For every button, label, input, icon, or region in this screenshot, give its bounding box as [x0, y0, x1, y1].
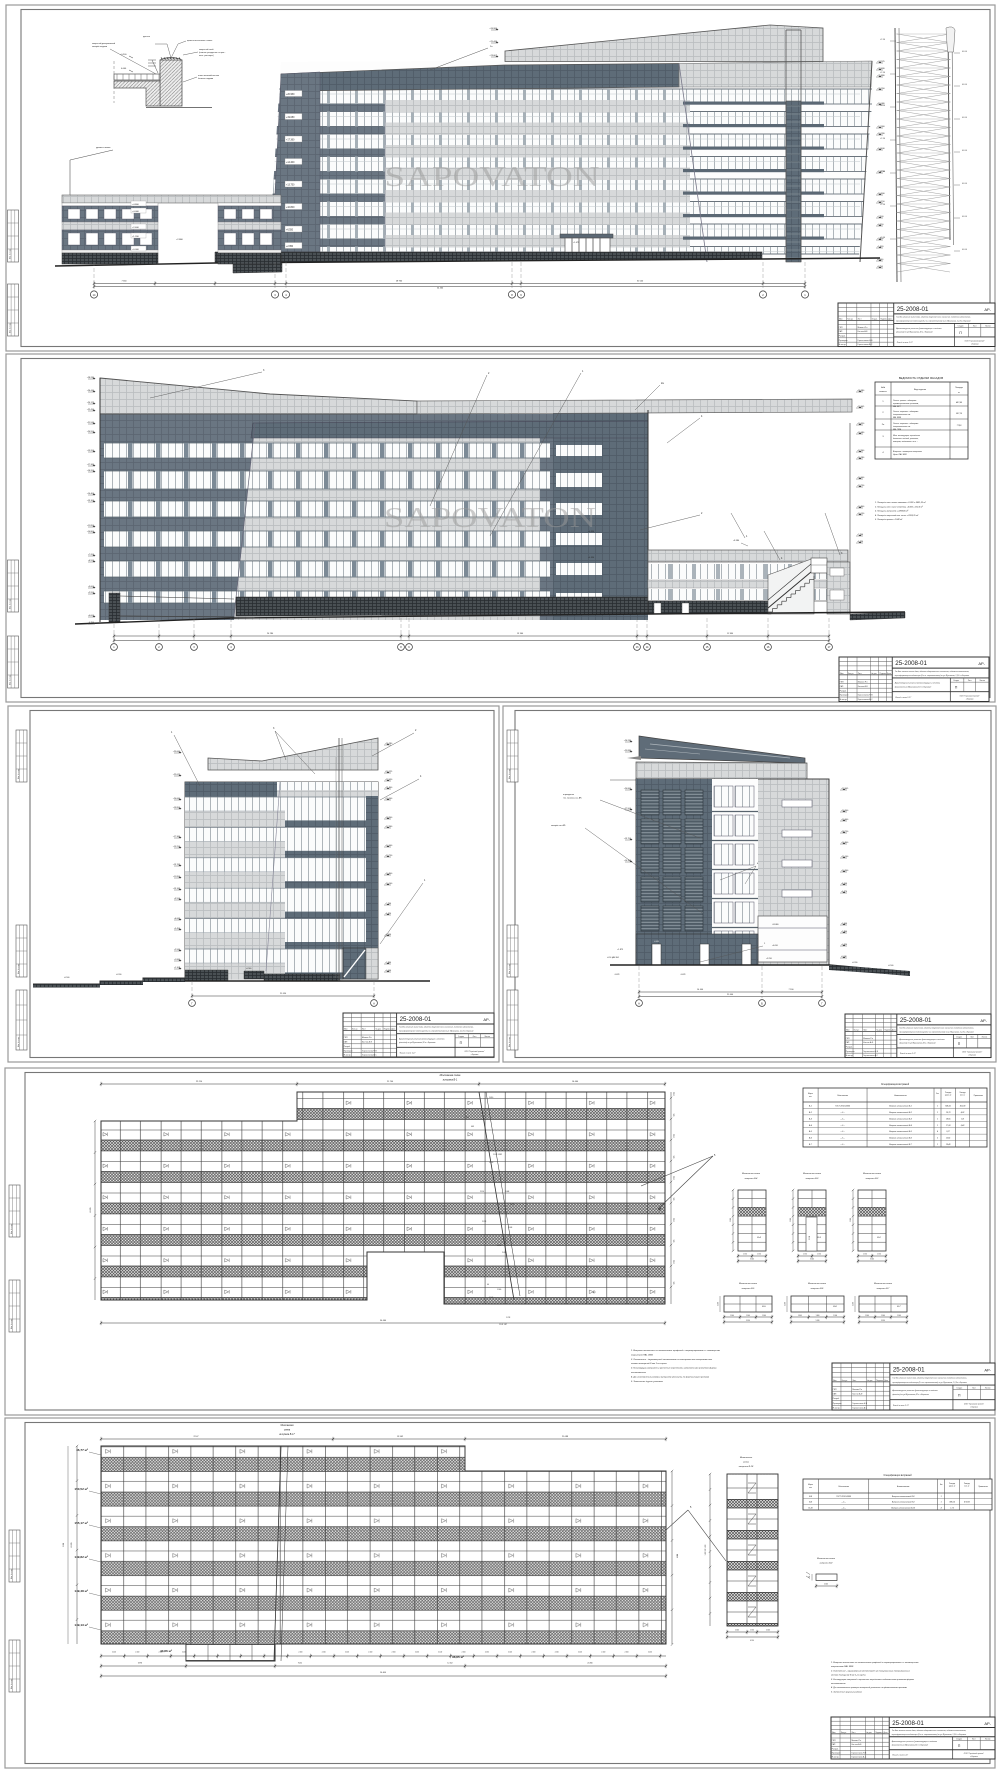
- svg-text:Кол.уч: Кол.уч: [352, 1029, 357, 1031]
- svg-text:Лист: Лист: [970, 1036, 974, 1038]
- svg-text:витража В-4: витража В-4: [745, 1177, 759, 1180]
- svg-text:2.003: 2.003: [508, 1227, 512, 1229]
- svg-text:-0.500: -0.500: [888, 965, 893, 967]
- svg-text:Площадь: Площадь: [959, 1092, 965, 1094]
- svg-text:Инв. № подл.: Инв. № подл.: [8, 248, 11, 259]
- svg-text:тех. балкона см. АР-: тех. балкона см. АР-: [563, 797, 582, 800]
- svg-text:+1.200: +1.200: [132, 236, 140, 238]
- svg-text:SAPOVATON: SAPOVATON: [385, 162, 600, 193]
- svg-text:Стены: порталы - облицовка: Стены: порталы - облицовка: [893, 411, 918, 413]
- svg-text:Архитектурные решения (реконст: Архитектурные решения (реконструкция и о…: [894, 682, 940, 685]
- svg-text:SAPOVATON: SAPOVATON: [384, 503, 596, 534]
- svg-text:Горностаева Н.В: Горностаева Н.В: [858, 340, 873, 342]
- svg-text:ООО "Городской проект": ООО "Городской проект": [464, 1050, 485, 1053]
- svg-text:Дата: Дата: [888, 319, 892, 321]
- svg-text:463: 463: [471, 1126, 474, 1128]
- svg-text:46,77 м²: 46,77 м²: [76, 1448, 88, 1452]
- svg-text:Инв. № подл.: Инв. № подл.: [508, 1036, 511, 1047]
- svg-text:Стены: порталы - облицовка: Стены: порталы - облицовка: [893, 423, 918, 425]
- svg-text:витража В-7: витража В-7: [877, 1288, 891, 1290]
- svg-text:3. Площадь витражей = 2266,65: 3. Площадь витражей = 2266,65 м²: [875, 510, 909, 513]
- svg-text:+4.800: +4.800: [132, 204, 140, 206]
- svg-text:Наименование: Наименование: [894, 1095, 906, 1097]
- svg-text:ВЕДОМОСТЬ ОТДЕЛКИ ФАСАДОВ: ВЕДОМОСТЬ ОТДЕЛКИ ФАСАДОВ: [899, 376, 943, 380]
- svg-text:24.225: 24.225: [71, 1542, 73, 1547]
- svg-text:1: 1: [941, 1496, 942, 1498]
- svg-text:5.910: 5.910: [881, 1320, 885, 1322]
- svg-text:фасадов) по ул.Мушникова,10 в: фасадов) по ул.Мушникова,10 в г.Кировске: [895, 685, 931, 688]
- svg-text:Н.контр.: Н.контр.: [840, 699, 848, 701]
- svg-text:Проверил: Проверил: [344, 1050, 353, 1052]
- svg-text:Горностаева А.С: Горностаева А.С: [852, 1756, 867, 1759]
- svg-text:1.750: 1.750: [877, 1254, 881, 1256]
- svg-text:4: 4: [941, 1506, 942, 1509]
- svg-text:Проверил: Проверил: [846, 1051, 855, 1053]
- svg-text:Лист: Лист: [473, 1036, 477, 1038]
- svg-text:Горностаева Н.В: Горностаева Н.В: [863, 1051, 878, 1053]
- svg-text:Разраб.: Разраб.: [840, 690, 847, 692]
- svg-text:«2.36: «2.36: [880, 204, 886, 206]
- svg-text:54.460: 54.460: [380, 1672, 386, 1674]
- svg-text:покрытием RAL 9006: покрытием RAL 9006: [631, 1353, 654, 1356]
- svg-text:3.500: 3.500: [750, 1259, 754, 1261]
- svg-text:ГИП: ГИП: [344, 1037, 348, 1039]
- svg-text:4. До изготовления размеры вит: 4. До изготовления размеры витражей уточ…: [631, 1375, 710, 1378]
- svg-text:2.360: 2.360: [63, 1543, 65, 1547]
- svg-text:Стадия: Стадия: [953, 680, 959, 682]
- svg-text:+13.750: +13.750: [286, 185, 295, 187]
- svg-text:2.100: 2.100: [485, 1652, 489, 1654]
- svg-text:149,82 м²: 149,82 м²: [74, 1555, 88, 1559]
- svg-text:витража В-18: витража В-18: [739, 1466, 754, 1468]
- svg-text:40.50: 40.50: [962, 249, 968, 251]
- svg-text:уровень земли: уровень земли: [96, 147, 111, 149]
- svg-text:А: А: [373, 1001, 375, 1005]
- svg-text:2. Остекление - двухкамерный с: 2. Остекление - двухкамерный стеклопакет…: [630, 1358, 713, 1361]
- svg-text:№ док.: № док.: [866, 1731, 872, 1734]
- svg-text:19.962: 19.962: [397, 1436, 404, 1438]
- svg-text:витража В-17: витража В-17: [279, 1434, 295, 1436]
- svg-text:витража В-9: витража В-9: [820, 1563, 834, 1565]
- svg-text:Дата: Дата: [883, 1732, 887, 1734]
- svg-text:Витраж алюминиевый В-9: Витраж алюминиевый В-9: [892, 1501, 915, 1504]
- svg-text:Монтажная: Монтажная: [281, 1425, 295, 1427]
- svg-text:Кол.уч: Кол.уч: [848, 673, 853, 675]
- svg-text:+1.875: +1.875: [617, 949, 624, 951]
- svg-text:24 280: 24 280: [267, 633, 274, 635]
- svg-text:цементно-песчаная стяжка: цементно-песчаная стяжка: [187, 40, 213, 42]
- svg-text:0.000: 0.000: [121, 68, 127, 70]
- svg-text:2.100: 2.100: [853, 1302, 855, 1306]
- svg-text:1.625: 1.625: [674, 1092, 676, 1096]
- svg-text:3. Конструкции витражей и креп: 3. Конструкции витражей и крепления опре…: [631, 1367, 717, 1370]
- svg-text:фасадов) по ул.Мушникова,10 в: фасадов) по ул.Мушникова,10 в г.Кировске: [899, 1042, 935, 1045]
- svg-text:(плитка тротуарная на цем.-: (плитка тротуарная на цем.-: [199, 52, 226, 54]
- svg-text:+14.400: +14.400: [286, 162, 295, 164]
- svg-text:925: 925: [674, 1156, 676, 1159]
- svg-text:+2.860: +2.860: [176, 239, 184, 241]
- svg-text:2.100: 2.100: [415, 1652, 419, 1654]
- svg-text:+4.000: +4.000: [132, 211, 140, 213]
- svg-text:Фасад в осях 1-17: Фасад в осях 1-17: [897, 341, 914, 344]
- svg-text:—//—: —//—: [839, 1112, 845, 1114]
- svg-text:АР-: АР-: [984, 1721, 991, 1726]
- svg-text:Монтажная схема: Монтажная схема: [742, 1173, 761, 1175]
- svg-text:Витраж алюминиевый В-1: Витраж алюминиевый В-1: [889, 1105, 912, 1108]
- svg-text:Кол.уч: Кол.уч: [854, 1030, 859, 1032]
- svg-text:Площадь: Площадь: [964, 1483, 970, 1485]
- svg-text:1.700: 1.700: [750, 1630, 754, 1632]
- svg-text:2.110: 2.110: [809, 1236, 811, 1240]
- svg-text:Архитектурные решения (реконст: Архитектурные решения (реконструкция и о…: [891, 1740, 937, 1743]
- svg-text:10,40: 10,40: [946, 1143, 951, 1146]
- svg-text:3. Конструкции витражей и креп: 3. Конструкции витражей и крепления опре…: [831, 1678, 914, 1681]
- svg-text:2.100: 2.100: [135, 1652, 139, 1654]
- svg-text:2.100: 2.100: [392, 1652, 396, 1654]
- svg-text:Витраж алюминиевый В-2: Витраж алюминиевый В-2: [889, 1111, 912, 1114]
- svg-text:Витраж алюминиевый В-10: Витраж алюминиевый В-10: [891, 1506, 915, 1509]
- svg-text:Проверил: Проверил: [832, 1753, 841, 1755]
- svg-text:2.100: 2.100: [601, 1652, 605, 1654]
- svg-text:7,21: 7,21: [961, 1118, 965, 1120]
- svg-text:13,78: 13,78: [946, 1112, 951, 1114]
- svg-text:411,03: 411,03: [960, 1105, 965, 1108]
- svg-text:ГИП: ГИП: [839, 327, 843, 329]
- svg-text:Инв. № подл.: Инв. № подл.: [10, 1318, 13, 1329]
- svg-text:2: 2: [936, 1138, 938, 1140]
- svg-text:ГИП: ГИП: [840, 681, 844, 683]
- svg-text:RAL 7024: RAL 7024: [893, 428, 901, 431]
- svg-text:ООО "Городской проект": ООО "Городской проект": [964, 1752, 985, 1755]
- svg-text:2.100: 2.100: [508, 1652, 512, 1654]
- svg-text:Инв. № подл.: Инв. № подл.: [10, 1223, 13, 1234]
- svg-text:1.625: 1.625: [674, 1260, 676, 1264]
- svg-text:фасадов) по ул.Мушникова,10 в: фасадов) по ул.Мушникова,10 в г.Кировске: [892, 1744, 928, 1747]
- svg-text:1.767: 1.767: [510, 1204, 514, 1206]
- svg-text:витража В-3: витража В-3: [806, 1178, 820, 1180]
- svg-text:7 560: 7 560: [121, 281, 127, 283]
- svg-text:28 960: 28 960: [396, 281, 403, 283]
- svg-text:645,51: 645,51: [945, 1105, 951, 1108]
- svg-text:+0.200: +0.200: [120, 54, 127, 56]
- svg-text:Витраж алюминиевый В-4: Витраж алюминиевый В-4: [889, 1124, 912, 1127]
- svg-text:925: 925: [674, 1240, 676, 1243]
- svg-text:21 600: 21 600: [727, 994, 734, 996]
- svg-text:2.100: 2.100: [785, 1302, 787, 1306]
- svg-text:1.625 925 1.625: 1.625 925 1.625: [705, 1544, 707, 1555]
- svg-text:витража В-5: витража В-5: [742, 1288, 756, 1290]
- svg-text:Инв. № подл.: Инв. № подл.: [8, 674, 11, 685]
- svg-text:ООО "Городской проект": ООО "Городской проект": [964, 1403, 985, 1406]
- svg-text:1.625: 1.625: [674, 1134, 676, 1138]
- svg-text:2.055: 2.055: [502, 1252, 506, 1254]
- svg-text:1. Витражи выполнить из алюмин: 1. Витражи выполнить из алюминиевых проф…: [831, 1661, 919, 1664]
- svg-text:г.Кировск: г.Кировск: [966, 698, 974, 700]
- svg-text:1.525: 1.525: [850, 1218, 852, 1222]
- svg-text:Кол.уч: Кол.уч: [842, 1380, 847, 1382]
- svg-text:керамогранитным гранитом,: керамогранитным гранитом,: [893, 403, 919, 405]
- svg-text:Мет. конструкции: ограждения: Мет. конструкции: ограждения: [893, 434, 920, 437]
- svg-text:ГОСТ 21519-2003: ГОСТ 21519-2003: [836, 1496, 851, 1498]
- svg-text:№ док.: № док.: [867, 1379, 873, 1382]
- svg-text:2.100: 2.100: [345, 1652, 349, 1654]
- svg-text:Листов: Листов: [484, 1036, 490, 1038]
- svg-text:25-2008-01: 25-2008-01: [897, 306, 929, 313]
- svg-text:Листов: Листов: [979, 680, 985, 682]
- svg-text:5.910: 5.910: [816, 1320, 820, 1322]
- svg-text:Фасад в осях 1-17: Фасад в осях 1-17: [892, 1754, 909, 1757]
- svg-text:ГИП: ГИП: [846, 1038, 850, 1040]
- svg-text:АР-: АР-: [984, 1368, 991, 1373]
- svg-text:балкона лоджии: балкона лоджии: [198, 78, 213, 80]
- svg-text:Подпись: Подпись: [880, 673, 887, 675]
- svg-text:декоративными анк.: декоративными анк.: [893, 413, 911, 416]
- svg-text:16.460: 16.460: [572, 1081, 579, 1083]
- svg-text:+4.050: +4.050: [772, 945, 778, 947]
- svg-text:Витраж алюминиевый В-6: Витраж алюминиевый В-6: [889, 1137, 912, 1140]
- svg-text:Разраб.: Разраб.: [833, 1398, 840, 1400]
- svg-text:Витраж алюминиевый В-3: Витраж алюминиевый В-3: [889, 1117, 912, 1120]
- svg-text:2.100: 2.100: [625, 1652, 629, 1654]
- svg-text:В-4: В-4: [809, 1124, 812, 1127]
- svg-text:Монтажная: Монтажная: [740, 1457, 753, 1459]
- svg-text:Цвет: RAL 9006: Цвет: RAL 9006: [893, 453, 907, 456]
- svg-text:АР-: АР-: [980, 1018, 987, 1023]
- svg-text:Фасад в осях 1-17: Фасад в осях 1-17: [400, 1051, 417, 1054]
- svg-text:Монтажная схема: Монтажная схема: [817, 1558, 836, 1560]
- svg-text:2.100: 2.100: [438, 1652, 442, 1654]
- svg-text:25-2008-01: 25-2008-01: [400, 1016, 432, 1023]
- svg-text:Проверил: Проверил: [833, 1403, 842, 1405]
- svg-text:1.900: 1.900: [798, 1315, 802, 1317]
- svg-text:2.100: 2.100: [462, 1652, 466, 1654]
- svg-text:3.500: 3.500: [810, 1259, 814, 1261]
- svg-text:-0.560: -0.560: [246, 968, 251, 970]
- svg-text:Витраж алюминиевый В-7: Витраж алюминиевый В-7: [889, 1143, 913, 1146]
- svg-text:Стадия: Стадия: [956, 1739, 962, 1741]
- svg-text:Мазеин Р.п: Мазеин Р.п: [863, 1038, 873, 1040]
- svg-text:Проверил: Проверил: [839, 340, 848, 342]
- svg-text:Монтажная схема: Монтажная схема: [739, 1283, 758, 1285]
- svg-text:1.900: 1.900: [816, 1315, 820, 1317]
- svg-text:Горностаева А.С: Горностаева А.С: [362, 1054, 377, 1057]
- svg-text:Разраб.: Разраб.: [832, 1748, 839, 1750]
- svg-text:Лист: Лист: [972, 1387, 976, 1389]
- svg-text:г.Кировск: г.Кировск: [970, 1756, 978, 1758]
- svg-text:54 460: 54 460: [437, 288, 444, 290]
- svg-text:Инв. № подл.: Инв. № подл.: [17, 963, 20, 974]
- svg-text:г.Кировск: г.Кировск: [968, 1054, 976, 1056]
- svg-text:Стадия: Стадия: [458, 1036, 464, 1038]
- svg-text:Архитектурные решения (реконст: Архитектурные решения (реконструкция и о…: [891, 1389, 937, 1392]
- svg-text:Н.контр.: Н.контр.: [344, 1055, 352, 1057]
- svg-text:5. Заполнение других участков: 5. Заполнение других участков: [831, 1690, 863, 1693]
- svg-text:Лист: Лист: [968, 680, 972, 682]
- svg-text:В-1: В-1: [809, 1106, 812, 1108]
- svg-text:21 650: 21 650: [280, 993, 287, 995]
- svg-text:1,72: 1,72: [950, 1507, 954, 1509]
- svg-text:2.100: 2.100: [555, 1652, 559, 1654]
- svg-text:+6.550: +6.550: [286, 230, 294, 232]
- svg-text:Лист: Лист: [858, 319, 862, 321]
- svg-text:12.102: 12.102: [447, 1663, 452, 1665]
- svg-text:—//—: —//—: [839, 1125, 845, 1127]
- svg-text:Монтажная схема: Монтажная схема: [874, 1283, 893, 1285]
- svg-text:Н.контр.: Н.контр.: [839, 344, 847, 346]
- svg-text:22.210: 22.210: [196, 1081, 203, 1083]
- svg-text:Б: Б: [761, 1001, 763, 1005]
- svg-text:1.900: 1.900: [865, 1315, 869, 1317]
- svg-text:1: 1: [937, 1106, 938, 1108]
- svg-text:Горностаева Н.В: Горностаева Н.В: [858, 695, 873, 697]
- svg-text:2.100: 2.100: [648, 1652, 652, 1654]
- svg-text:+3.250: +3.250: [766, 958, 772, 960]
- svg-text:№ док.: № док.: [871, 672, 877, 675]
- svg-text:Горностаева А.С: Горностаева А.С: [852, 1407, 867, 1410]
- svg-text:Лист: Лист: [863, 1030, 867, 1032]
- svg-text:925: 925: [674, 1282, 676, 1285]
- svg-text:Мазеин Р.п: Мазеин Р.п: [852, 1740, 862, 1742]
- svg-text:17,33: 17,33: [946, 1125, 951, 1127]
- svg-text:Проверил: Проверил: [840, 695, 849, 697]
- svg-text:ООО "Городской проект": ООО "Городской проект": [962, 1050, 983, 1053]
- svg-text:40.50: 40.50: [962, 150, 968, 152]
- svg-text:1.900: 1.900: [833, 1315, 837, 1317]
- svg-text:21.088: 21.088: [562, 1436, 569, 1438]
- svg-text:Площадь: Площадь: [945, 1092, 951, 1094]
- svg-text:1. Витражи выполнить из алюмин: 1. Витражи выполнить из алюминиевых проф…: [631, 1349, 720, 1352]
- svg-text:—//—: —//—: [839, 1131, 845, 1133]
- svg-text:Подпись: Подпись: [880, 319, 887, 321]
- svg-text:-0.500: -0.500: [64, 977, 69, 979]
- svg-text:11 380: 11 380: [727, 633, 734, 635]
- svg-text:Марка: Марка: [808, 1093, 813, 1095]
- svg-text:—//—: —//—: [839, 1118, 845, 1120]
- svg-text:Мазеин Р.п: Мазеин Р.п: [858, 681, 868, 683]
- svg-text:фасадов) по ул.Мушникова,10 в: фасадов) по ул.Мушникова,10 в г.Кировске: [896, 331, 932, 334]
- svg-text:стекол толщиной 6 мм 1-го сорт: стекол толщиной 6 мм 1-го сорта: [831, 1674, 867, 1677]
- svg-text:№ док.: № док.: [375, 1028, 381, 1031]
- svg-text:1.960: 1.960: [497, 1289, 501, 1291]
- svg-text:Подпись: Подпись: [876, 1380, 883, 1382]
- svg-text:2.100: 2.100: [182, 1652, 186, 1654]
- svg-text:2.168: 2.168: [497, 1245, 501, 1247]
- svg-text:Стадия: Стадия: [956, 1036, 962, 1038]
- svg-text:АР-: АР-: [483, 1017, 490, 1022]
- svg-text:Горностаева Н.В: Горностаева Н.В: [852, 1403, 867, 1405]
- svg-text:«2.36: «2.36: [880, 105, 886, 107]
- svg-text:Стены: цоколь - облицовка: Стены: цоколь - облицовка: [893, 400, 916, 402]
- svg-text:Кол.уч: Кол.уч: [841, 1732, 846, 1734]
- svg-text:14 400: 14 400: [697, 989, 704, 991]
- svg-text:2.223: 2.223: [482, 1221, 486, 1223]
- svg-text:4,32: 4,32: [961, 1111, 965, 1114]
- svg-text:витража В-6: витража В-6: [811, 1288, 825, 1290]
- svg-text:Фасад в осях 1-17: Фасад в осях 1-17: [900, 1052, 917, 1055]
- svg-text:4: 4: [937, 1130, 938, 1133]
- svg-text:Горностаева Н.В: Горностаева Н.В: [852, 1753, 867, 1755]
- svg-text:149,13 м²: 149,13 м²: [74, 1623, 88, 1627]
- svg-text:5,43: 5,43: [961, 1124, 965, 1127]
- svg-text:906,13: 906,13: [949, 1502, 955, 1504]
- svg-text:36,65 м²: 36,65 м²: [452, 1655, 464, 1659]
- svg-text:—//—: —//—: [840, 1502, 846, 1504]
- svg-text:Архитектурные решения (реконст: Архитектурные решения (реконструкция и о…: [895, 327, 941, 330]
- svg-text:+8.580: +8.580: [733, 540, 740, 542]
- svg-text:150,52 м²: 150,52 м²: [74, 1487, 88, 1491]
- svg-text:ООО "Городской проект": ООО "Городской проект": [960, 694, 981, 697]
- svg-text:40.50: 40.50: [962, 216, 968, 218]
- svg-text:1.502: 1.502: [489, 1297, 493, 1299]
- svg-text:2.100: 2.100: [531, 1652, 535, 1654]
- svg-text:+10.800: +10.800: [286, 207, 295, 209]
- svg-text:изготовителя: изготовителя: [831, 1683, 846, 1685]
- svg-text:RAL 9077: RAL 9077: [893, 405, 902, 408]
- svg-text:Горностаева А.С: Горностаева А.С: [858, 343, 873, 346]
- svg-text:Спецификация витражей: Спецификация витражей: [881, 1083, 910, 1086]
- svg-text:1. Площадь стен выше отметки +: 1. Площадь стен выше отметки +0.000 = 24…: [875, 501, 926, 504]
- svg-text:Стадия: Стадия: [958, 325, 964, 327]
- svg-text:Разраб.: Разраб.: [344, 1046, 351, 1048]
- svg-text:5. Площадь кровли = 1242 м²: 5. Площадь кровли = 1242 м²: [875, 518, 903, 521]
- svg-text:2.300: 2.300: [824, 1584, 828, 1586]
- svg-text:2. Остекление - двухкамерный с: 2. Остекление - двухкамерный стеклопакет…: [830, 1669, 911, 1672]
- svg-text:Лист: Лист: [852, 1380, 856, 1382]
- svg-text:фасадов) по ул.Мушникова,10 в: фасадов) по ул.Мушникова,10 в г.Кировске: [892, 1393, 928, 1396]
- svg-text:1.750: 1.750: [743, 1254, 747, 1256]
- svg-text:Мазеин Р.п: Мазеин Р.п: [362, 1037, 372, 1039]
- svg-text:Инв. № подл.: Инв. № подл.: [8, 322, 11, 333]
- svg-text:козырёк см. АР-: козырёк см. АР-: [551, 824, 566, 827]
- svg-text:-1.478: -1.478: [680, 974, 685, 976]
- svg-text:1.900: 1.900: [746, 1315, 750, 1317]
- svg-text:Листов: Листов: [985, 1739, 991, 1741]
- svg-text:АР-: АР-: [978, 661, 985, 666]
- svg-text:Кол.уч: Кол.уч: [847, 319, 852, 321]
- svg-text:Листов: Листов: [982, 1036, 988, 1038]
- svg-text:1: 1: [937, 1125, 938, 1127]
- svg-text:1.102 1.87: 1.102 1.87: [499, 1324, 507, 1326]
- svg-text:1.750: 1.750: [803, 1254, 807, 1256]
- svg-text:Монтажная схема: Монтажная схема: [803, 1173, 822, 1175]
- svg-text:2.100: 2.100: [368, 1652, 372, 1654]
- svg-text:4. До изготовления размеры вит: 4. До изготовления размеры витражей уточ…: [831, 1686, 907, 1689]
- svg-text:Инв. № подл.: Инв. № подл.: [8, 598, 11, 609]
- svg-text:стекол толщиной 6 мм 1-го сорт: стекол толщиной 6 мм 1-го сорта: [631, 1362, 668, 1365]
- svg-text:2.100: 2.100: [578, 1652, 582, 1654]
- svg-text:Костюк А.Ф: Костюк А.Ф: [863, 1041, 874, 1044]
- svg-text:4. Площадь покрытий кож. стен: 4. Площадь покрытий кож. стен = 2163,15 …: [875, 514, 918, 517]
- svg-text:защитный слой: защитный слой: [199, 48, 213, 51]
- svg-text:1: 1: [937, 1112, 938, 1114]
- svg-text:155,17 м²: 155,17 м²: [74, 1521, 88, 1525]
- svg-text:2.110: 2.110: [480, 1191, 484, 1193]
- svg-text:40: 40: [487, 1284, 489, 1286]
- svg-text:Дата: Дата: [391, 1029, 395, 1031]
- svg-text:деталь: деталь: [143, 36, 151, 38]
- svg-text:+2.400: +2.400: [132, 227, 140, 229]
- svg-text:25-2008-01: 25-2008-01: [893, 1367, 925, 1374]
- svg-text:12,61: 12,61: [946, 1138, 951, 1140]
- svg-text:18,55: 18,55: [946, 1118, 951, 1120]
- svg-text:Обозначение: Обозначение: [837, 1095, 848, 1097]
- svg-text:Мазеин Р.п: Мазеин Р.п: [858, 327, 868, 329]
- svg-text:40.50: 40.50: [962, 183, 968, 185]
- svg-text:750: 750: [809, 1576, 811, 1579]
- svg-text:1.625: 1.625: [674, 1218, 676, 1222]
- svg-text:ГИП: ГИП: [832, 1740, 836, 1742]
- svg-text:Лист: Лист: [973, 325, 977, 327]
